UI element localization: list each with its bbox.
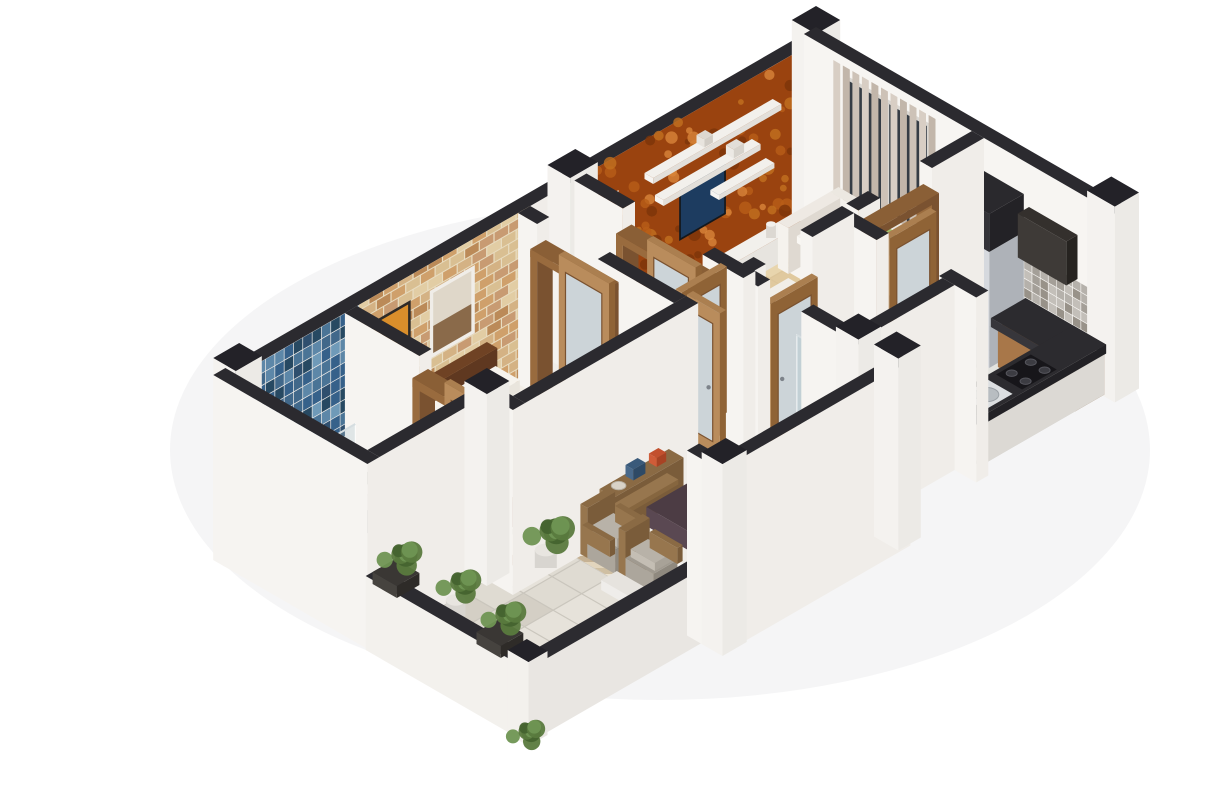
hob-burner-2 (1039, 367, 1050, 373)
hob-burner-4 (1020, 378, 1031, 384)
pillar-room2-corner (702, 438, 747, 656)
apartment-3d-floorplan (0, 0, 1229, 809)
scene-svg (0, 0, 1229, 809)
floor-plan-canvas (0, 0, 1229, 809)
pillar-ensuite-corner (464, 368, 509, 586)
hob-burner (1025, 359, 1036, 365)
pillar-room2-ne (874, 332, 921, 551)
vase-small (766, 221, 776, 238)
console-bowl (611, 481, 626, 489)
hob-burner-3 (1006, 370, 1017, 376)
